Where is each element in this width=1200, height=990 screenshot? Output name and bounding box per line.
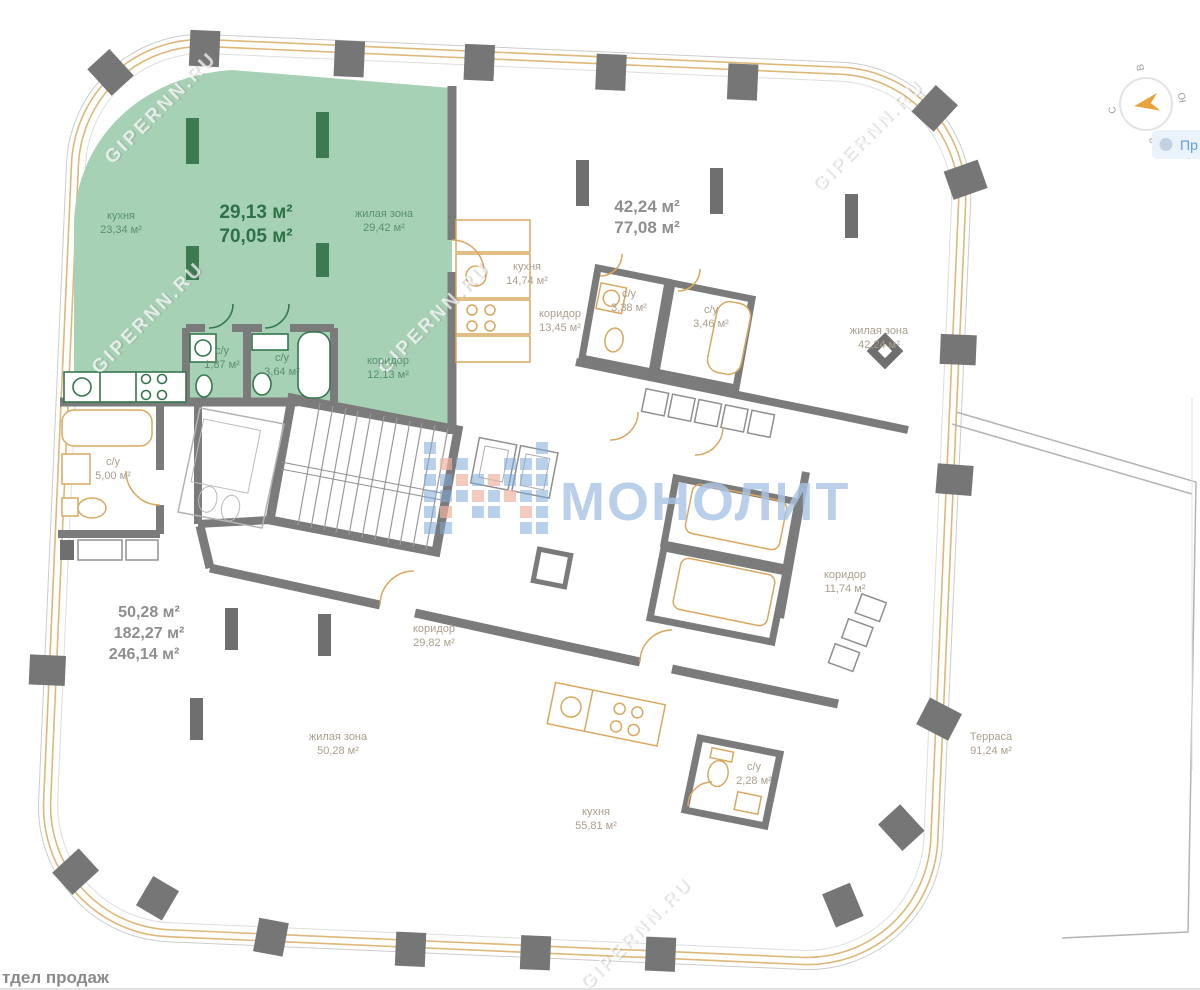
room-area: 13,45 м² [539, 322, 581, 334]
watermark: GIPERNN.RU [808, 76, 928, 196]
room-label: с/у [215, 345, 230, 357]
big-kitchen-fixtures [547, 682, 665, 745]
room-label: кухня [582, 806, 610, 818]
big-unit-area-1: 50,28 м² [118, 604, 180, 621]
room-area: 1,87 м² [204, 359, 240, 371]
room-label: с/у [275, 352, 290, 364]
green-unit-area-living: 29,13 м² [219, 202, 292, 223]
room-label: с/у [704, 304, 719, 316]
room-area: 14,74 м² [506, 275, 548, 287]
logo-text: МОНОЛИТ [560, 472, 850, 532]
room-area: 29,82 м² [413, 637, 455, 649]
room-label: жилая зона [355, 208, 414, 220]
green-unit-area-total: 70,05 м² [219, 226, 292, 247]
room-area: 12,13 м² [367, 369, 409, 381]
room-label: жилая зона [309, 731, 368, 743]
shaft-box [533, 549, 571, 587]
room-label: кухня [513, 261, 541, 273]
room-label: коридор [413, 623, 455, 635]
room-area: 3,46 м² [693, 318, 729, 330]
sales-office-text: тдел продаж [2, 968, 110, 987]
compass-south: Ю [1177, 92, 1190, 104]
legend-dot-icon [1160, 138, 1173, 151]
big-unit-area-3: 246,14 м² [109, 646, 180, 663]
room-area: 23,34 м² [100, 224, 142, 236]
room-area: 3,38 м² [611, 302, 647, 314]
compass-north: С [1107, 105, 1119, 114]
big-unit-area-2: 182,27 м² [114, 625, 185, 642]
room-area: 2,28 м² [736, 775, 772, 787]
room-label: с/у [622, 288, 637, 300]
room-label: кухня [107, 210, 135, 222]
compass-east: В [1135, 63, 1147, 72]
room-area: 5,00 м² [95, 470, 131, 482]
duct-shafts-right [828, 591, 886, 674]
room-area: 29,42 м² [363, 222, 405, 234]
watermark: GIPERNN.RU [576, 874, 696, 990]
terrace [952, 398, 1196, 938]
room-area: 55,81 м² [575, 820, 617, 832]
room-label: коридор [367, 355, 409, 367]
room-area: 50,28 м² [317, 745, 359, 757]
room-area: 42,24 м² [858, 339, 900, 351]
right-unit-area-total: 77,08 м² [614, 218, 680, 237]
room-area: 11,74 м² [825, 583, 866, 595]
terrace-area: 91,24 м² [970, 745, 1012, 757]
labels-terrace: Терраса 91,24 м² [970, 731, 1013, 757]
terrace-label: Терраса [970, 731, 1013, 743]
room-label: с/у [106, 456, 121, 468]
room-label: коридор [824, 569, 866, 581]
legend-chip[interactable]: Пр [1152, 130, 1200, 159]
green-kitchen-fixtures [64, 372, 186, 402]
room-area: 3,64 м² [264, 366, 300, 378]
right-unit-area-living: 42,24 м² [614, 197, 680, 216]
room-label: коридор [539, 308, 581, 320]
floor-plan: GIPERNN.RU GIPERNN.RU GIPERNN.RU GIPERNN… [0, 0, 1200, 990]
legend-chip-label: Пр [1180, 137, 1198, 153]
room-label: жилая зона [850, 325, 909, 337]
room-label: с/у [747, 761, 762, 773]
